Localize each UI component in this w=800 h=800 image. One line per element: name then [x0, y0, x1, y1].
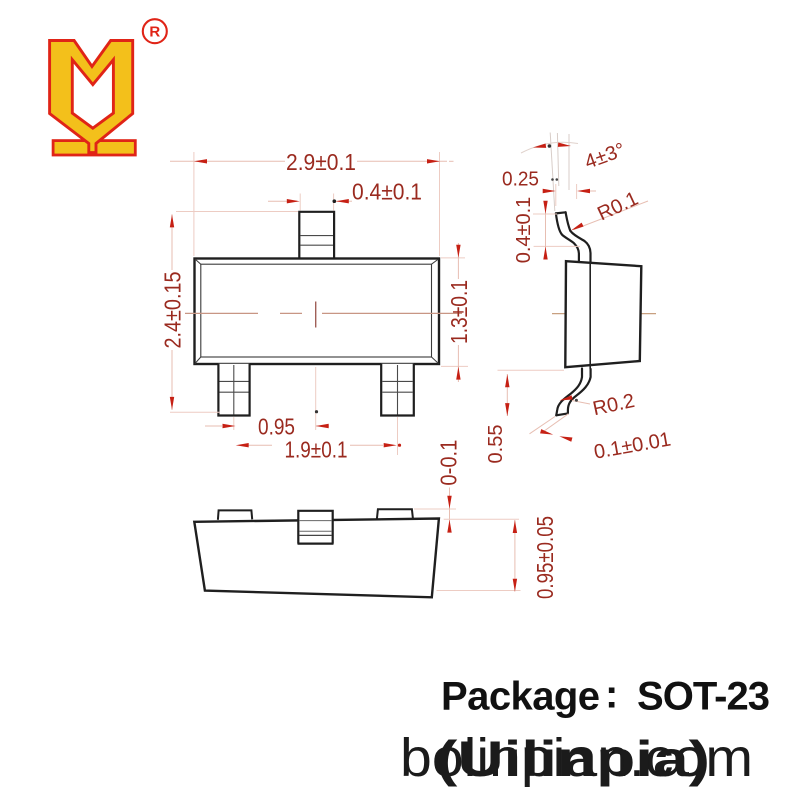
svg-text:Package: Package	[441, 675, 600, 719]
svg-text:2.4±0.15: 2.4±0.15	[160, 272, 186, 349]
svg-text:0.95±0.05: 0.95±0.05	[532, 516, 558, 599]
svg-text:0.4±0.1: 0.4±0.1	[352, 179, 422, 205]
svg-text:R0.2: R0.2	[591, 390, 637, 420]
svg-text:2.9±0.1: 2.9±0.1	[286, 149, 356, 175]
svg-text:SOT-23: SOT-23	[637, 675, 770, 719]
svg-text:0.4±0.1: 0.4±0.1	[513, 197, 535, 264]
svg-text:0.25: 0.25	[502, 169, 539, 191]
svg-text:0.1±0.01: 0.1±0.01	[592, 429, 672, 464]
svg-text:0-0.1: 0-0.1	[436, 440, 462, 486]
svg-text::: :	[605, 673, 618, 717]
svg-text:0.55: 0.55	[485, 425, 507, 464]
svg-text:(Uilinpia): (Uilinpia)	[436, 731, 710, 787]
svg-text:1.3±0.1: 1.3±0.1	[446, 280, 472, 344]
svg-text:4±3°: 4±3°	[582, 139, 628, 174]
svg-text:1.9±0.1: 1.9±0.1	[285, 436, 348, 462]
svg-text:R0.1: R0.1	[594, 188, 642, 226]
svg-text:R: R	[149, 24, 160, 41]
